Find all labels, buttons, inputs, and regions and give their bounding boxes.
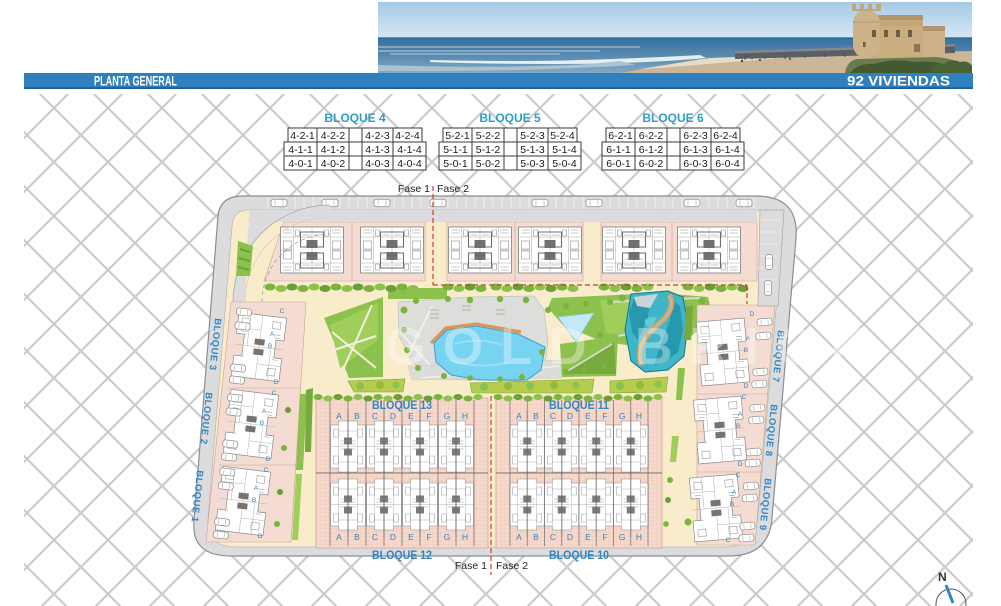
- svg-text:4-1-2: 4-1-2: [321, 144, 346, 156]
- svg-text:5-0-3: 5-0-3: [520, 158, 545, 170]
- svg-text:A: A: [336, 411, 342, 421]
- svg-text:E: E: [408, 532, 414, 542]
- svg-text:4-0-1: 4-0-1: [288, 158, 313, 170]
- svg-text:D: D: [390, 532, 396, 542]
- svg-text:B: B: [260, 420, 264, 427]
- svg-text:A: A: [254, 485, 259, 492]
- svg-text:Fase 2: Fase 2: [496, 560, 528, 572]
- svg-text:C: C: [280, 308, 285, 315]
- svg-text:A: A: [262, 408, 267, 415]
- svg-text:E: E: [585, 411, 591, 421]
- svg-text:4-1-4: 4-1-4: [397, 144, 422, 156]
- svg-text:C: C: [372, 532, 378, 542]
- svg-text:C: C: [726, 537, 731, 544]
- svg-text:6-1-1: 6-1-1: [606, 144, 631, 156]
- svg-text:G: G: [444, 532, 451, 542]
- svg-text:4-1-3: 4-1-3: [365, 144, 390, 156]
- svg-text:D: D: [738, 461, 743, 468]
- svg-text:5-1-2: 5-1-2: [476, 144, 501, 156]
- svg-text:B: B: [268, 343, 272, 350]
- svg-text:B: B: [533, 532, 539, 542]
- svg-text:D: D: [274, 379, 279, 386]
- svg-text:6-2-4: 6-2-4: [713, 130, 738, 142]
- svg-text:D: D: [750, 311, 755, 318]
- svg-text:E: E: [585, 532, 591, 542]
- svg-text:BLOQUE 4: BLOQUE 4: [324, 111, 386, 125]
- svg-text:C: C: [550, 532, 556, 542]
- svg-text:5-1-4: 5-1-4: [552, 144, 577, 156]
- svg-text:D: D: [390, 411, 396, 421]
- svg-text:4-2-2: 4-2-2: [321, 130, 346, 142]
- svg-text:5-2-3: 5-2-3: [520, 130, 545, 142]
- svg-text:6-1-3: 6-1-3: [683, 144, 708, 156]
- svg-text:E: E: [408, 411, 414, 421]
- svg-text:A: A: [516, 532, 522, 542]
- svg-text:C: C: [742, 394, 747, 401]
- svg-text:G: G: [444, 411, 451, 421]
- svg-text:H: H: [636, 532, 642, 542]
- svg-text:BLOQUE 5: BLOQUE 5: [479, 111, 541, 125]
- svg-text:C: C: [264, 467, 269, 474]
- svg-text:Fase 1: Fase 1: [455, 560, 487, 572]
- svg-text:BLOQUE 6: BLOQUE 6: [642, 111, 704, 125]
- svg-text:6-0-3: 6-0-3: [683, 158, 708, 170]
- svg-text:5-0-1: 5-0-1: [443, 158, 468, 170]
- svg-text:4-2-1: 4-2-1: [290, 130, 315, 142]
- svg-text:6-1-4: 6-1-4: [715, 144, 740, 156]
- svg-text:6-2-2: 6-2-2: [639, 130, 664, 142]
- svg-text:B: B: [736, 423, 740, 430]
- svg-text:Fase 1: Fase 1: [398, 183, 430, 195]
- svg-text:F: F: [602, 532, 607, 542]
- svg-text:C: C: [550, 411, 556, 421]
- svg-text:BLOQUE 10: BLOQUE 10: [549, 550, 609, 562]
- svg-text:F: F: [602, 411, 607, 421]
- svg-text:G: G: [619, 411, 626, 421]
- svg-text:4-2-3: 4-2-3: [365, 130, 390, 142]
- svg-text:B: B: [252, 497, 256, 504]
- svg-text:A: A: [738, 411, 743, 418]
- svg-text:6-1-2: 6-1-2: [639, 144, 664, 156]
- svg-text:4-0-4: 4-0-4: [397, 158, 422, 170]
- svg-text:5-2-1: 5-2-1: [445, 130, 470, 142]
- svg-text:F: F: [426, 411, 431, 421]
- svg-text:4-2-4: 4-2-4: [395, 130, 420, 142]
- svg-text:D: D: [258, 533, 263, 540]
- svg-text:5-1-1: 5-1-1: [443, 144, 468, 156]
- svg-text:A: A: [516, 411, 522, 421]
- svg-text:4-1-1: 4-1-1: [288, 144, 313, 156]
- svg-text:D: D: [567, 411, 573, 421]
- svg-text:5-2-4: 5-2-4: [550, 130, 575, 142]
- svg-text:Fase 2: Fase 2: [437, 183, 469, 195]
- svg-text:GOLD BRICK: GOLD BRICK: [385, 318, 884, 376]
- svg-text:6-0-4: 6-0-4: [715, 158, 740, 170]
- svg-text:6-2-3: 6-2-3: [683, 130, 708, 142]
- svg-text:D: D: [744, 383, 749, 390]
- svg-text:92 VIVIENDAS: 92 VIVIENDAS: [847, 73, 950, 89]
- svg-text:C: C: [736, 472, 741, 479]
- svg-text:B: B: [354, 411, 360, 421]
- svg-text:N: N: [938, 570, 947, 584]
- svg-text:BLOQUE 12: BLOQUE 12: [372, 550, 432, 562]
- svg-text:A: A: [270, 331, 275, 338]
- svg-text:6-2-1: 6-2-1: [608, 130, 633, 142]
- svg-text:6-0-2: 6-0-2: [639, 158, 664, 170]
- svg-text:A: A: [732, 489, 737, 496]
- svg-text:BLOQUE 13: BLOQUE 13: [372, 400, 432, 412]
- svg-text:5-0-2: 5-0-2: [476, 158, 501, 170]
- svg-text:4-0-2: 4-0-2: [321, 158, 346, 170]
- svg-text:G: G: [619, 532, 626, 542]
- svg-text:5-2-2: 5-2-2: [476, 130, 501, 142]
- svg-text:H: H: [462, 411, 468, 421]
- svg-text:4-0-3: 4-0-3: [365, 158, 390, 170]
- svg-text:D: D: [567, 532, 573, 542]
- svg-text:B: B: [533, 411, 539, 421]
- svg-text:F: F: [426, 532, 431, 542]
- svg-text:D: D: [266, 456, 271, 463]
- svg-text:B: B: [354, 532, 360, 542]
- svg-text:C: C: [372, 411, 378, 421]
- svg-text:PLANTA GENERAL: PLANTA GENERAL: [94, 73, 177, 89]
- svg-text:H: H: [462, 532, 468, 542]
- svg-text:A: A: [336, 532, 342, 542]
- svg-text:C: C: [272, 390, 277, 397]
- svg-text:H: H: [636, 411, 642, 421]
- svg-text:6-0-1: 6-0-1: [606, 158, 631, 170]
- svg-text:5-0-4: 5-0-4: [552, 158, 577, 170]
- svg-text:B: B: [730, 501, 734, 508]
- svg-text:BLOQUE 11: BLOQUE 11: [549, 400, 610, 412]
- svg-text:5-1-3: 5-1-3: [520, 144, 545, 156]
